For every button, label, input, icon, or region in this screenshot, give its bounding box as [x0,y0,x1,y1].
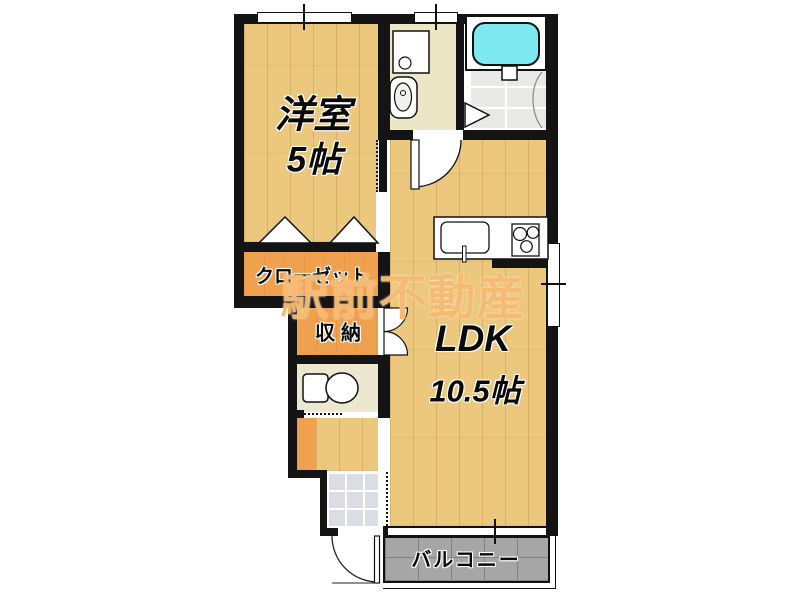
floor-plan: 洋室 5帖 クローゼット 収納 LDK 10.5帖 バルコニー 駅前不動産 [0,0,800,600]
label-western-size: 5帖 [287,132,341,183]
entrance-door-leaf [375,536,380,583]
entrance-door-arc [332,536,378,582]
burner-icon [514,228,527,241]
washing-machine-pan-icon [393,31,429,73]
drain-icon [399,57,411,69]
door-leaf [411,140,419,189]
folding-door-icon [259,217,311,243]
label-balcony: バルコニー [411,544,521,573]
basin-drain [401,91,406,96]
bathtub-step [502,66,517,80]
bath-folding-door-icon [465,103,489,127]
burner-icon [521,241,533,253]
folding-door-icon [330,217,378,243]
watermark-ekimae-fudosan: 駅前不動産 [280,258,525,328]
label-western-room: 洋室 [275,84,351,139]
storage-door-arc [384,332,408,356]
toilet-tank [303,374,328,402]
bath-curve [533,72,542,128]
bathtub-icon [473,23,539,65]
burner-icon [527,227,539,239]
basin-bowl [395,83,412,111]
label-ldk-size: 10.5帖 [429,366,520,411]
toilet-bowl-icon [326,373,358,403]
